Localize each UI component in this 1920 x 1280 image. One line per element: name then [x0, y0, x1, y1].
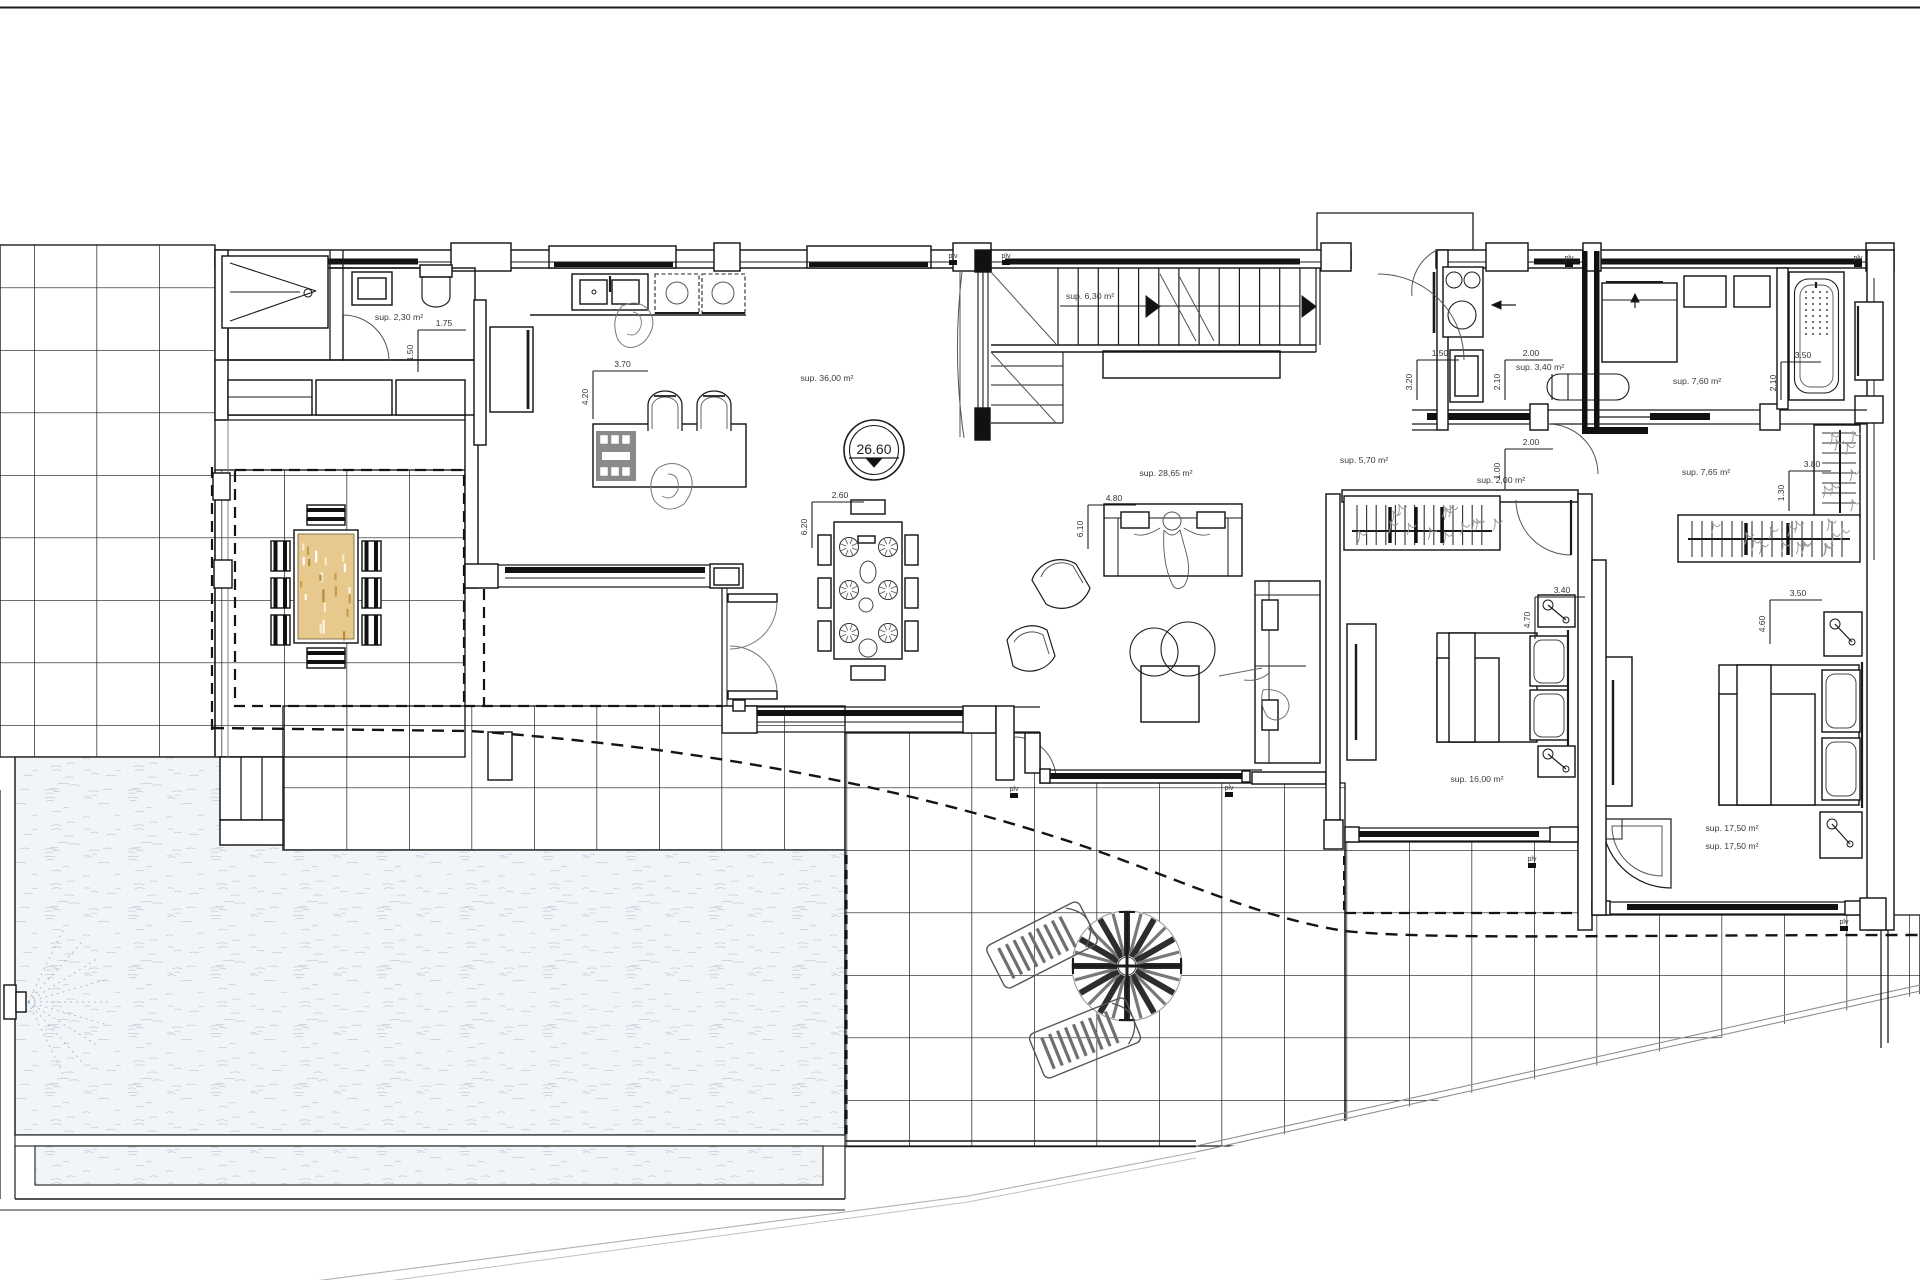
svg-text:sup. 36,00 m²: sup. 36,00 m²: [800, 373, 853, 383]
svg-text:plv: plv: [1010, 786, 1019, 793]
svg-text:1.30: 1.30: [1776, 484, 1786, 501]
svg-text:6.10: 6.10: [1075, 520, 1085, 537]
svg-text:4.60: 4.60: [1757, 615, 1767, 632]
svg-text:2.10: 2.10: [1492, 373, 1502, 390]
svg-text:plv: plv: [1002, 253, 1011, 260]
svg-text:sup. 17,50 m²: sup. 17,50 m²: [1705, 841, 1758, 851]
svg-text:2.60: 2.60: [832, 490, 849, 500]
svg-text:26.60: 26.60: [856, 441, 891, 457]
svg-text:2.10: 2.10: [1768, 374, 1778, 391]
svg-text:1.50: 1.50: [1432, 348, 1449, 358]
svg-text:4.80: 4.80: [1106, 493, 1123, 503]
svg-text:3.50: 3.50: [1790, 588, 1807, 598]
svg-text:3.70: 3.70: [614, 359, 631, 369]
svg-text:1.50: 1.50: [405, 344, 415, 361]
svg-text:sup. 3,40 m²: sup. 3,40 m²: [1516, 362, 1564, 372]
svg-text:plv: plv: [1854, 255, 1863, 262]
svg-text:sup. 16,00 m²: sup. 16,00 m²: [1450, 774, 1503, 784]
svg-text:sup. 7,60 m²: sup. 7,60 m²: [1673, 376, 1721, 386]
svg-text:2.00: 2.00: [1523, 348, 1540, 358]
svg-text:2.00: 2.00: [1523, 437, 1540, 447]
svg-text:1.75: 1.75: [436, 318, 453, 328]
svg-text:3.50: 3.50: [1795, 350, 1812, 360]
svg-text:6.20: 6.20: [799, 518, 809, 535]
svg-text:plv: plv: [1565, 255, 1574, 262]
svg-text:sup. 28,65 m²: sup. 28,65 m²: [1139, 468, 1192, 478]
svg-text:plv: plv: [949, 253, 958, 260]
svg-text:plv: plv: [1225, 785, 1234, 792]
svg-text:sup. 5,70 m²: sup. 5,70 m²: [1340, 455, 1388, 465]
svg-text:sup. 6,30 m²: sup. 6,30 m²: [1066, 291, 1114, 301]
svg-text:sup. 17,50 m²: sup. 17,50 m²: [1705, 823, 1758, 833]
svg-text:plv: plv: [1528, 856, 1537, 863]
svg-text:sup. 7,65 m²: sup. 7,65 m²: [1682, 467, 1730, 477]
svg-text:sup. 2,30 m²: sup. 2,30 m²: [375, 312, 423, 322]
svg-text:3.80: 3.80: [1804, 459, 1821, 469]
svg-text:sup. 2,00 m²: sup. 2,00 m²: [1477, 475, 1525, 485]
svg-text:plv: plv: [1840, 919, 1849, 926]
svg-text:3.20: 3.20: [1404, 373, 1414, 390]
svg-text:3.40: 3.40: [1554, 585, 1571, 595]
svg-text:4.70: 4.70: [1522, 611, 1532, 628]
svg-text:4.20: 4.20: [580, 388, 590, 405]
